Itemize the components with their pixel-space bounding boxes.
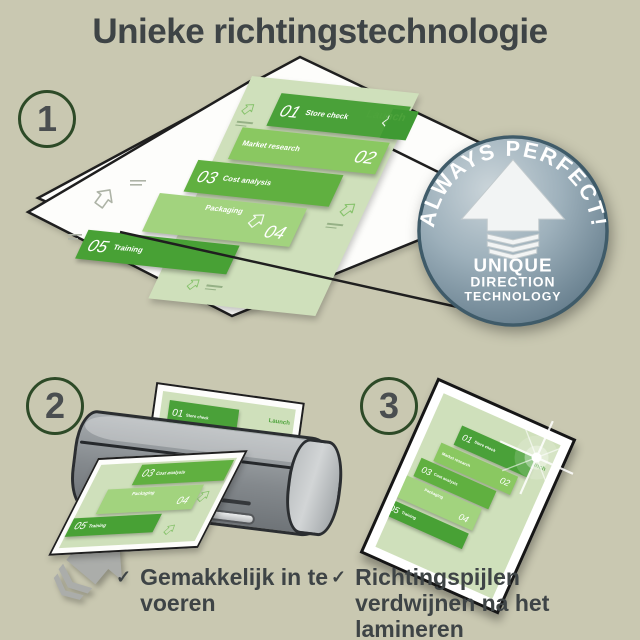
mini-band-04: Packaging 04 — [96, 484, 204, 514]
band-03-label: Cost analysis — [221, 175, 273, 188]
band-02-label: Market research — [240, 140, 301, 154]
check-icon: ✓ — [116, 567, 131, 616]
doc-watermark-arrow — [160, 523, 178, 536]
band-05-number: 05 — [85, 237, 111, 255]
mini-band-03: 03 Cost analysis — [132, 460, 234, 485]
benefit-text-2: Richtingspijlen verdwijnen na het lamine… — [355, 564, 631, 640]
mini-band-01-number: 01 — [461, 433, 474, 445]
badge-line-technology: TECHNOLOGY — [464, 289, 561, 303]
page-title: Unieke richtingstechnologie — [0, 12, 640, 52]
mini-band-04-number: 04 — [457, 512, 470, 524]
doc-watermark-arrow — [336, 200, 361, 218]
mini-band-03-number: 03 — [139, 469, 155, 480]
band-05-label: Training — [112, 244, 145, 255]
doc-micro-text — [204, 283, 224, 293]
doc-watermark-arrow — [184, 277, 204, 292]
benefit-text-1: Gemakkelijk in te voeren — [140, 564, 331, 616]
badge-line-direction: DIRECTION — [470, 273, 555, 289]
band-03-number: 03 — [194, 168, 220, 186]
mini-band-02-label: Market research — [441, 452, 471, 468]
benefit-item-1: ✓ Gemakkelijk in te voeren — [116, 564, 331, 616]
doc-micro-text — [324, 221, 344, 231]
mini-band-05-number: 05 — [72, 522, 88, 533]
badge-graphic: ALWAYS PERFECT! UNIQUE DIRECTION TECHNOL… — [414, 132, 612, 330]
mini-band-04-number: 04 — [174, 496, 190, 507]
check-icon: ✓ — [331, 567, 346, 640]
mini-band-01-number: 01 — [171, 409, 183, 420]
band-01-label: Store check — [304, 109, 350, 121]
doc-watermark-arrow — [238, 101, 258, 116]
always-perfect-badge: ALWAYS PERFECT! UNIQUE DIRECTION TECHNOL… — [414, 132, 612, 330]
badge-line-unique: UNIQUE — [473, 255, 552, 276]
mini-band-04-label: Packaging — [130, 491, 155, 497]
mini-band-04-label: Packaging — [424, 488, 444, 500]
band-02-number: 02 — [352, 147, 380, 166]
step-3-number: 3 — [379, 385, 399, 427]
benefit-item-2: ✓ Richtingspijlen verdwijnen na het lami… — [331, 564, 631, 640]
band-01-number: 01 — [277, 102, 303, 120]
mini-band-05: 05 Training — [65, 514, 162, 537]
band-04-number: 04 — [261, 223, 289, 242]
step-2-marker: 2 — [26, 377, 84, 435]
illustration-stage: Unieke richtingstechnologie 1 01 Store c… — [0, 0, 640, 640]
mini-band-05-label: Training — [401, 511, 417, 521]
step-3-marker: 3 — [360, 377, 418, 435]
mini-band-05-label: Training — [87, 523, 107, 529]
mini-band-03-number: 03 — [420, 465, 433, 477]
mini-band-01-label: Store check — [186, 413, 209, 421]
mini-band-05-number: 05 — [388, 503, 401, 515]
mini-band-03-label: Cost analysis — [433, 472, 458, 487]
mini-launch-label: Launch — [268, 418, 290, 427]
mini-band-03-label: Cost analysis — [155, 470, 187, 477]
step-2-number: 2 — [45, 385, 65, 427]
band-04-label: Packaging — [204, 204, 245, 216]
mini-band-01-label: Store check — [473, 440, 496, 453]
